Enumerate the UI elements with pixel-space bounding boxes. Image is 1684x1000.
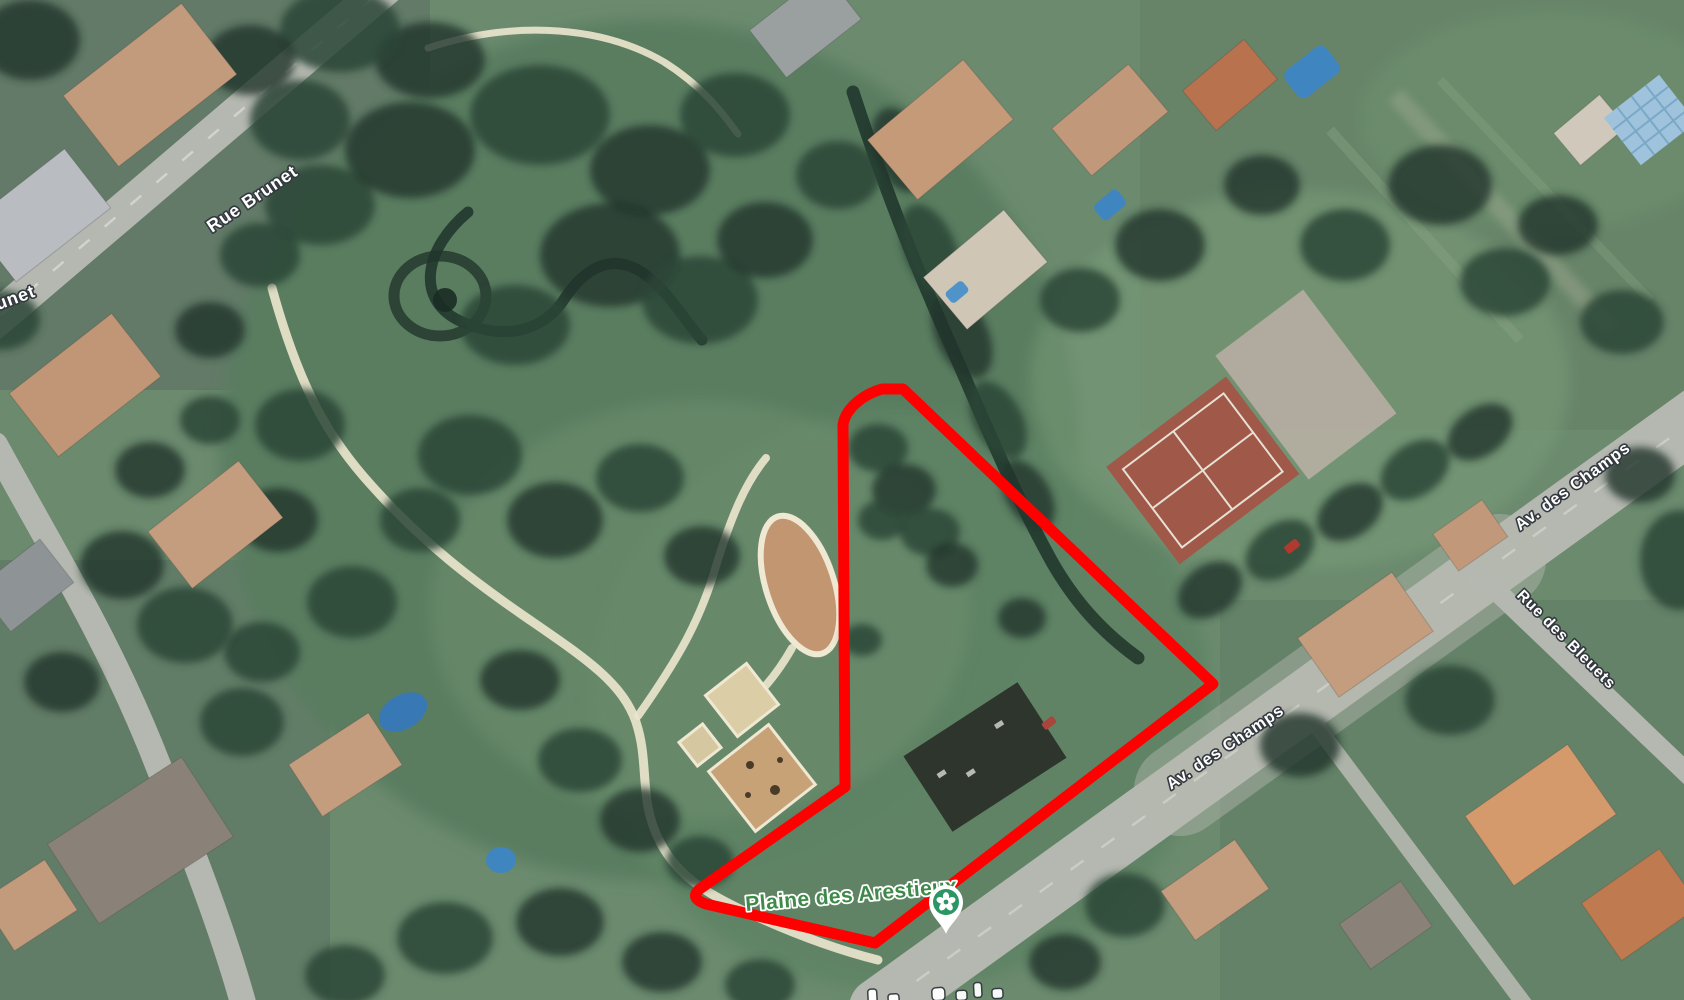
satellite-map-viewport[interactable]: Rue Brunet Rue Brunet Av. des Champs Av.… <box>0 0 1684 1000</box>
pool <box>486 847 516 873</box>
map-canvas[interactable]: Rue Brunet Rue Brunet Av. des Champs Av.… <box>0 0 1684 1000</box>
